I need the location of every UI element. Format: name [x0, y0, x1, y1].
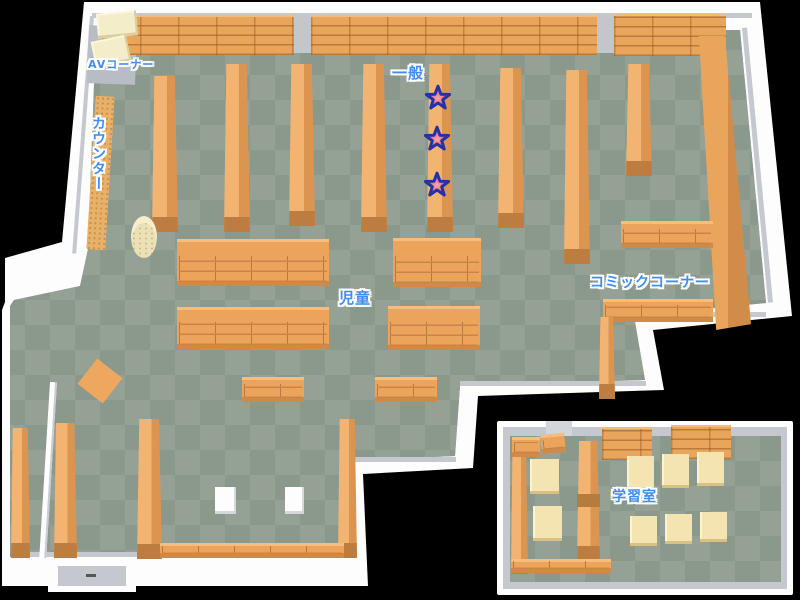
children-label: 児童	[339, 287, 371, 308]
bookshelf-west-1	[11, 428, 30, 558]
library-map: AVコーナー カウンター 一般 児童 コミックコーナー 学習室	[0, 0, 800, 600]
small-table-2	[285, 487, 304, 514]
study-table-r1c1	[627, 456, 654, 490]
bookshelf-aisle-4	[361, 64, 387, 232]
top-wall-bookshelf-center	[311, 15, 597, 55]
counter-label: カウンター	[88, 116, 108, 191]
study-room-label: 学習室	[612, 486, 657, 506]
comic-corner-label: コミックコーナー	[590, 272, 710, 292]
bookshelf-aisle-7	[564, 70, 590, 264]
children-shelf-row2-right	[388, 306, 480, 350]
study-shelf-left	[511, 441, 528, 574]
av-corner-label: AVコーナー	[88, 56, 154, 72]
door-handle	[86, 574, 96, 577]
children-shelf-row2-left	[177, 307, 329, 349]
bookshelf-aisle-6	[498, 68, 524, 228]
study-shelf-bottom	[511, 559, 611, 573]
step-wall-edge-1	[348, 457, 456, 462]
children-bench-1	[242, 377, 304, 402]
wall-pillar-1	[294, 15, 311, 53]
star-marker-1[interactable]	[423, 83, 453, 113]
comic-shelf-side	[599, 317, 615, 399]
star-marker-2[interactable]	[422, 124, 452, 154]
study-table-r1c3	[697, 452, 724, 486]
study-shelf-topleft-1	[512, 437, 540, 457]
study-table-left-2	[533, 506, 562, 541]
bookshelf-west-2	[54, 423, 77, 558]
bookshelf-aisle-1	[152, 76, 178, 232]
step-wall-edge-2	[460, 381, 646, 386]
study-table-left-1	[530, 459, 559, 494]
bookshelf-aisle-8	[626, 64, 652, 176]
bookshelf-aisle-2	[224, 64, 250, 232]
children-bench-2	[375, 377, 437, 402]
small-table-1	[215, 487, 236, 514]
comic-shelf-bottom	[603, 299, 713, 322]
av-unit-1	[96, 10, 138, 38]
star-marker-3[interactable]	[422, 170, 452, 200]
study-table-r2c2	[665, 514, 692, 544]
bookshelf-west-3	[137, 419, 162, 559]
children-shelf-row1-right	[393, 238, 481, 287]
comic-shelf-top	[621, 221, 713, 248]
general-label: 一般	[392, 62, 424, 83]
children-shelf-row1-left	[177, 239, 329, 286]
study-divider-gap	[577, 494, 600, 507]
bookshelf-aisle-3	[289, 64, 315, 226]
wall-pillar-2	[597, 15, 614, 53]
bottom-wall-shelf	[160, 543, 344, 558]
study-table-r2c3	[700, 512, 727, 542]
study-table-r1c2	[662, 454, 689, 488]
column-pillar	[131, 216, 157, 258]
study-table-r2c1	[630, 516, 657, 546]
bookshelf-west-4	[338, 419, 357, 558]
study-shelf-topleft-2	[540, 433, 566, 454]
